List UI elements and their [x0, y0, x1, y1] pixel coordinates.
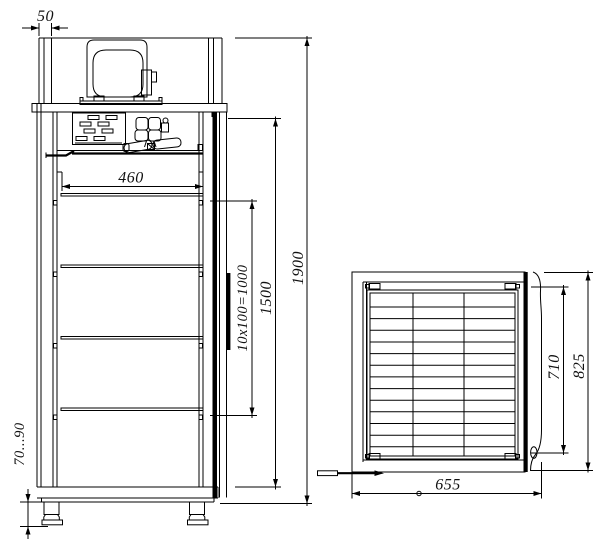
dim-leg-height-label: 70...90: [12, 422, 28, 466]
shelves: [54, 194, 204, 420]
dim-inner-width-label: 460: [118, 170, 144, 187]
base: [37, 487, 218, 502]
drain-pipe: [46, 151, 74, 156]
foot-right: [188, 502, 209, 525]
front-view: 50 460 10x100=1000 1500: [12, 8, 312, 539]
cabinet-walls: [37, 104, 203, 488]
dim-inner-width: 460: [62, 170, 203, 190]
door-handle: [227, 273, 231, 350]
dim-post-width: 50: [22, 8, 68, 36]
dim-overall-width-label: 655: [435, 477, 461, 494]
dim-interior-depth: 710: [531, 285, 569, 455]
shelf-3: [54, 337, 204, 349]
dim-overall-depth-label: 825: [571, 353, 588, 379]
technical-drawing-canvas: 50 460 10x100=1000 1500: [0, 0, 610, 541]
evaporator-fan: [123, 118, 181, 154]
door-plan-view: [524, 272, 542, 472]
condenser-louvers: [73, 113, 126, 145]
door-swing-indicator: [318, 470, 385, 476]
foot-left: [42, 502, 63, 525]
dim-interior-height-label: 1500: [258, 281, 275, 315]
shelf-4: [54, 408, 204, 420]
dim-overall-height: 1900: [220, 36, 312, 506]
dim-shelf-pitch-label: 10x100=1000: [235, 264, 251, 351]
dim-interior-depth-label: 710: [546, 354, 563, 380]
corner-clips: [366, 284, 520, 460]
top-posts: [39, 38, 222, 104]
plan-body: [352, 272, 525, 472]
dim-post-width-label: 50: [37, 8, 54, 25]
dim-leg-height: 70...90: [12, 422, 48, 539]
plan-view: 710 825 655: [318, 271, 594, 499]
dim-overall-width: 655: [352, 462, 542, 499]
fan-blade-right: [153, 138, 182, 150]
compressor: [80, 40, 162, 105]
dim-shelf-pitch: 10x100=1000: [210, 199, 257, 418]
dim-overall-height-label: 1900: [290, 251, 307, 285]
door-front-view: [212, 112, 231, 498]
shelf-2: [54, 265, 204, 277]
shelf-1: [54, 194, 204, 206]
cabinet-drawing: 50 460 10x100=1000 1500: [0, 0, 610, 541]
wire-shelf-grid: [367, 290, 518, 459]
